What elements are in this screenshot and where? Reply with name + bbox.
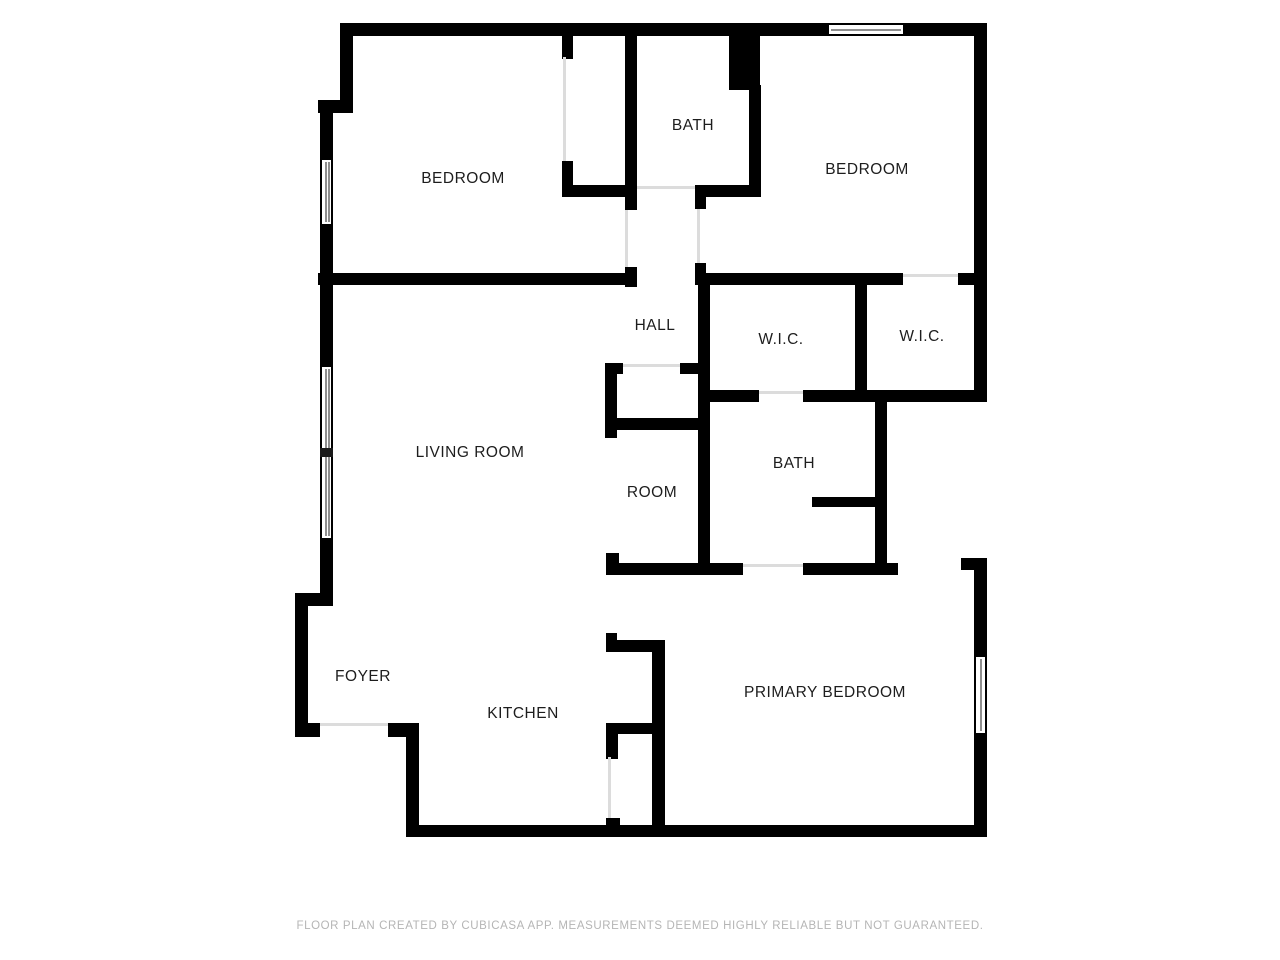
room-label-living-room: LIVING ROOM [416, 444, 525, 462]
room-label-bedroom-1: BEDROOM [421, 170, 505, 188]
room-label-wic-right: W.I.C. [899, 328, 944, 346]
room-label-foyer: FOYER [335, 668, 391, 686]
primary-door-opening [608, 757, 611, 818]
window-bedroom2-top-part [903, 23, 909, 36]
left-wall-top [340, 23, 353, 105]
bedroom2-bottom-wall [700, 273, 903, 285]
closet1-right-wall [625, 33, 637, 210]
bottom-wall [408, 825, 987, 837]
kitchen-door-jamb [606, 818, 620, 837]
bath2-partition [812, 497, 875, 507]
window-bedroom1-left [320, 156, 333, 228]
kitchen-primary-wall [652, 640, 665, 837]
window-primary-right [974, 653, 987, 737]
bath1-door-opening [637, 186, 695, 189]
right-wall-lower [974, 735, 987, 837]
room-bottom-wall [610, 563, 743, 575]
foyer-left-wall [295, 604, 308, 737]
wic-divider-wall [855, 283, 867, 393]
window-bedroom2-top-part [823, 23, 829, 36]
closet1-door-opening [563, 57, 566, 161]
closet1-left-wall-top [562, 33, 573, 59]
window-primary-right-part [974, 651, 987, 657]
room-label-hall: HALL [635, 317, 676, 335]
window-living-left [320, 363, 333, 542]
wic-left-door-opening [759, 391, 803, 394]
bath1-wall-chunk [729, 33, 760, 90]
primary-top-wall [803, 563, 898, 575]
hall-closet-bottom-wall [605, 418, 700, 430]
floor-plan-canvas: BEDROOMBATHBEDROOMHALLW.I.C.W.I.C.LIVING… [0, 0, 1280, 960]
window-primary-right-part [980, 659, 982, 731]
window-bedroom1-left-part [328, 162, 330, 222]
bath2-right-wall [875, 390, 887, 573]
room-label-primary-bedroom: PRIMARY BEDROOM [744, 684, 906, 702]
window-bedroom2-top-part [831, 29, 901, 31]
room-label-wic-left: W.I.C. [758, 331, 803, 349]
bedroom2-bottom-wall-end [958, 273, 975, 285]
window-living-left-part [320, 538, 333, 544]
hall-closet-door-opening [623, 364, 680, 367]
kitchen-left-wall [406, 723, 419, 837]
right-wall-upper [974, 23, 987, 402]
window-primary-right-part [974, 733, 987, 739]
room-label-kitchen: KITCHEN [487, 705, 559, 723]
room-label-bedroom-2: BEDROOM [825, 161, 909, 179]
right-wall-mid [974, 558, 987, 655]
disclaimer-text: FLOOR PLAN CREATED BY CUBICASA APP. MEAS… [296, 920, 983, 932]
room-label-bath-1: BATH [672, 117, 714, 135]
wic-left-bottom-wall-a [698, 390, 759, 402]
window-bedroom1-left-part [320, 224, 333, 230]
hall-bed2-jamb-upper [695, 185, 706, 209]
wic-left-bottom-wall-b [803, 390, 857, 402]
bath1-right-wall [749, 85, 761, 197]
room-label-room: ROOM [627, 484, 677, 502]
window-living-left-part [320, 448, 333, 457]
bath2-door-opening [743, 564, 803, 567]
left-wall-lower [320, 540, 333, 598]
wic-right-door-opening [903, 274, 958, 277]
entry-door-opening [320, 723, 388, 726]
hall-closet-jamb-right [680, 363, 699, 374]
window-bedroom1-left-part [320, 154, 333, 160]
room-label-bath-2: BATH [773, 455, 815, 473]
left-wall-mid [320, 226, 333, 365]
window-bedroom2-top [825, 23, 907, 36]
kitchen-nook-cap-bottom [606, 723, 618, 759]
left-wall-upper [320, 100, 333, 158]
bedroom1-door-opening [625, 210, 628, 267]
window-living-left-part [320, 361, 333, 367]
bedroom1-bottom-wall [318, 273, 633, 285]
foyer-bottom-wall-left [295, 723, 320, 737]
bedroom2-door-opening [697, 209, 700, 263]
window-bedroom1-left-part [325, 162, 327, 222]
